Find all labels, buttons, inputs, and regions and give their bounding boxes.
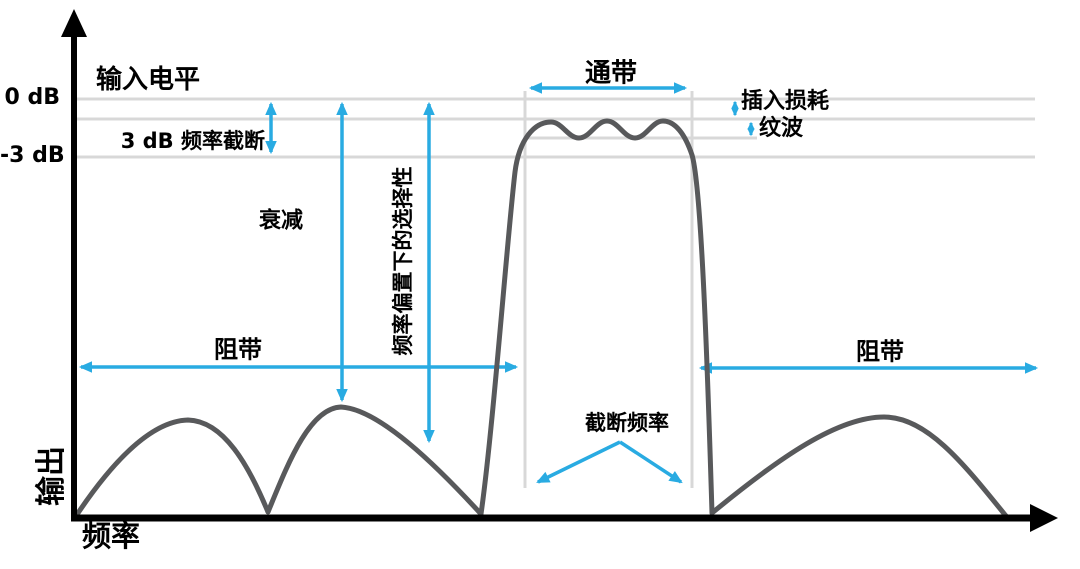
- x-axis-label: 频率: [82, 520, 140, 552]
- filter-response-diagram: 0 dB -3 dB 输入电平 3 dB 频率截断 衰减 频率偏置下的选择性 通…: [0, 0, 1080, 569]
- cutoff-freq-right-pointer: [620, 442, 681, 482]
- insertion-loss-label: 插入损耗: [741, 90, 829, 115]
- ripple-label: 纹波: [759, 117, 803, 142]
- stopband-right-label: 阻带: [856, 339, 904, 366]
- x-axis-arrowhead: [1030, 504, 1058, 532]
- filter-response-curve: [76, 121, 1006, 516]
- tick-minus3db: -3 dB: [0, 144, 60, 169]
- y-axis-arrowhead: [61, 9, 87, 37]
- cutoff-freq-left-pointer: [538, 442, 620, 482]
- cutoff-frequency-label: 截断频率: [585, 412, 669, 436]
- stopband-left-label: 阻带: [214, 337, 262, 364]
- input-level-label: 输入电平: [96, 66, 200, 95]
- cutoff-3db-label: 3 dB 频率截断: [60, 130, 265, 154]
- attenuation-label: 衰减: [259, 210, 303, 235]
- selectivity-label: 频率偏置下的选择性: [392, 167, 416, 356]
- passband-label: 通带: [585, 59, 637, 88]
- y-axis-label: 输出: [35, 446, 69, 506]
- tick-0db: 0 dB: [0, 86, 60, 111]
